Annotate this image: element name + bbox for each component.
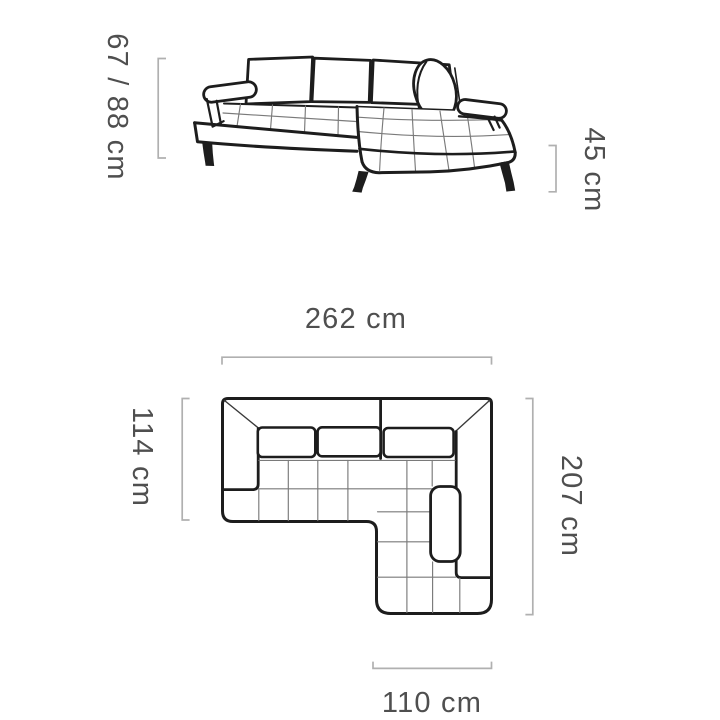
right-depth-label: 207 cm [554, 396, 588, 616]
overall-height-dimension-bracket [158, 59, 166, 159]
left-depth-dimension-bracket [182, 399, 189, 521]
seat-height-dimension-bracket [549, 146, 557, 192]
back-cushion-left [246, 57, 313, 104]
overall-height-label: 67 / 88 cm [100, 0, 134, 217]
sofa-side-view-drawing [195, 55, 516, 193]
sofa-top-view-drawing [223, 399, 492, 614]
back-cushion-middle [312, 58, 371, 102]
seat-height-label: 45 cm [577, 90, 611, 250]
overall-width-label: 262 cm [256, 302, 456, 336]
overall-width-dimension-bracket [222, 357, 492, 364]
plan-back-cushion-left [258, 428, 316, 458]
chaise-left-leg [352, 171, 368, 193]
front-left-leg [202, 142, 214, 166]
left-depth-label: 114 cm [125, 357, 159, 557]
chaise-width-label: 110 cm [332, 686, 532, 720]
plan-side-pillow [431, 487, 461, 562]
plan-back-cushion-right [384, 428, 454, 457]
chaise-right-leg [499, 161, 515, 192]
chaise-width-dimension-bracket [373, 662, 492, 669]
right-depth-dimension-bracket [525, 399, 532, 615]
plan-back-cushion-middle [318, 427, 381, 456]
sofa-dimension-diagram: 67 / 88 cm 45 cm 262 cm 114 cm 207 cm 11… [0, 0, 720, 720]
